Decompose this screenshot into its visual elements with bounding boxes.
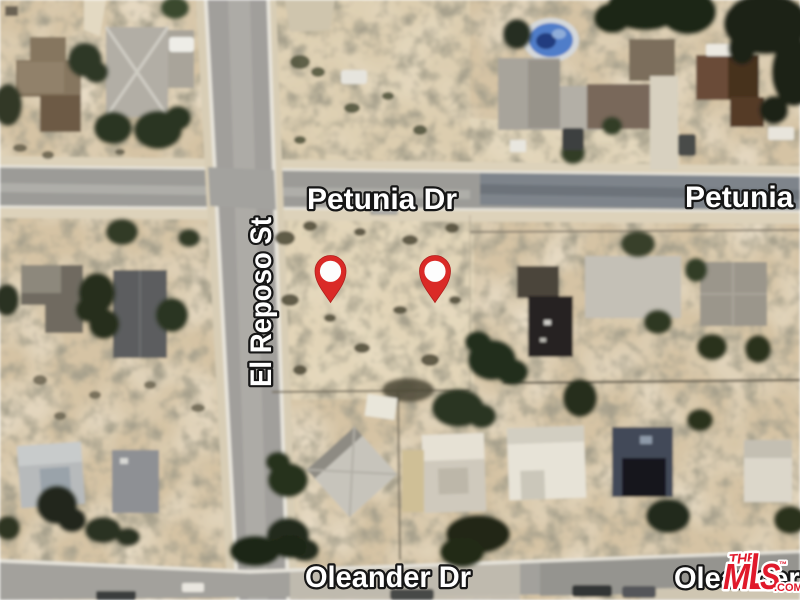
svg-text:M: M bbox=[723, 557, 751, 597]
svg-text:Oleander Dr: Oleander Dr bbox=[305, 561, 471, 594]
svg-text:Petunia Dr: Petunia Dr bbox=[307, 183, 457, 216]
svg-text:.COM: .COM bbox=[774, 582, 800, 594]
svg-text:Petunia D: Petunia D bbox=[685, 181, 800, 214]
svg-text:™: ™ bbox=[779, 560, 787, 569]
svg-text:El Reposo St: El Reposo St bbox=[245, 217, 278, 387]
